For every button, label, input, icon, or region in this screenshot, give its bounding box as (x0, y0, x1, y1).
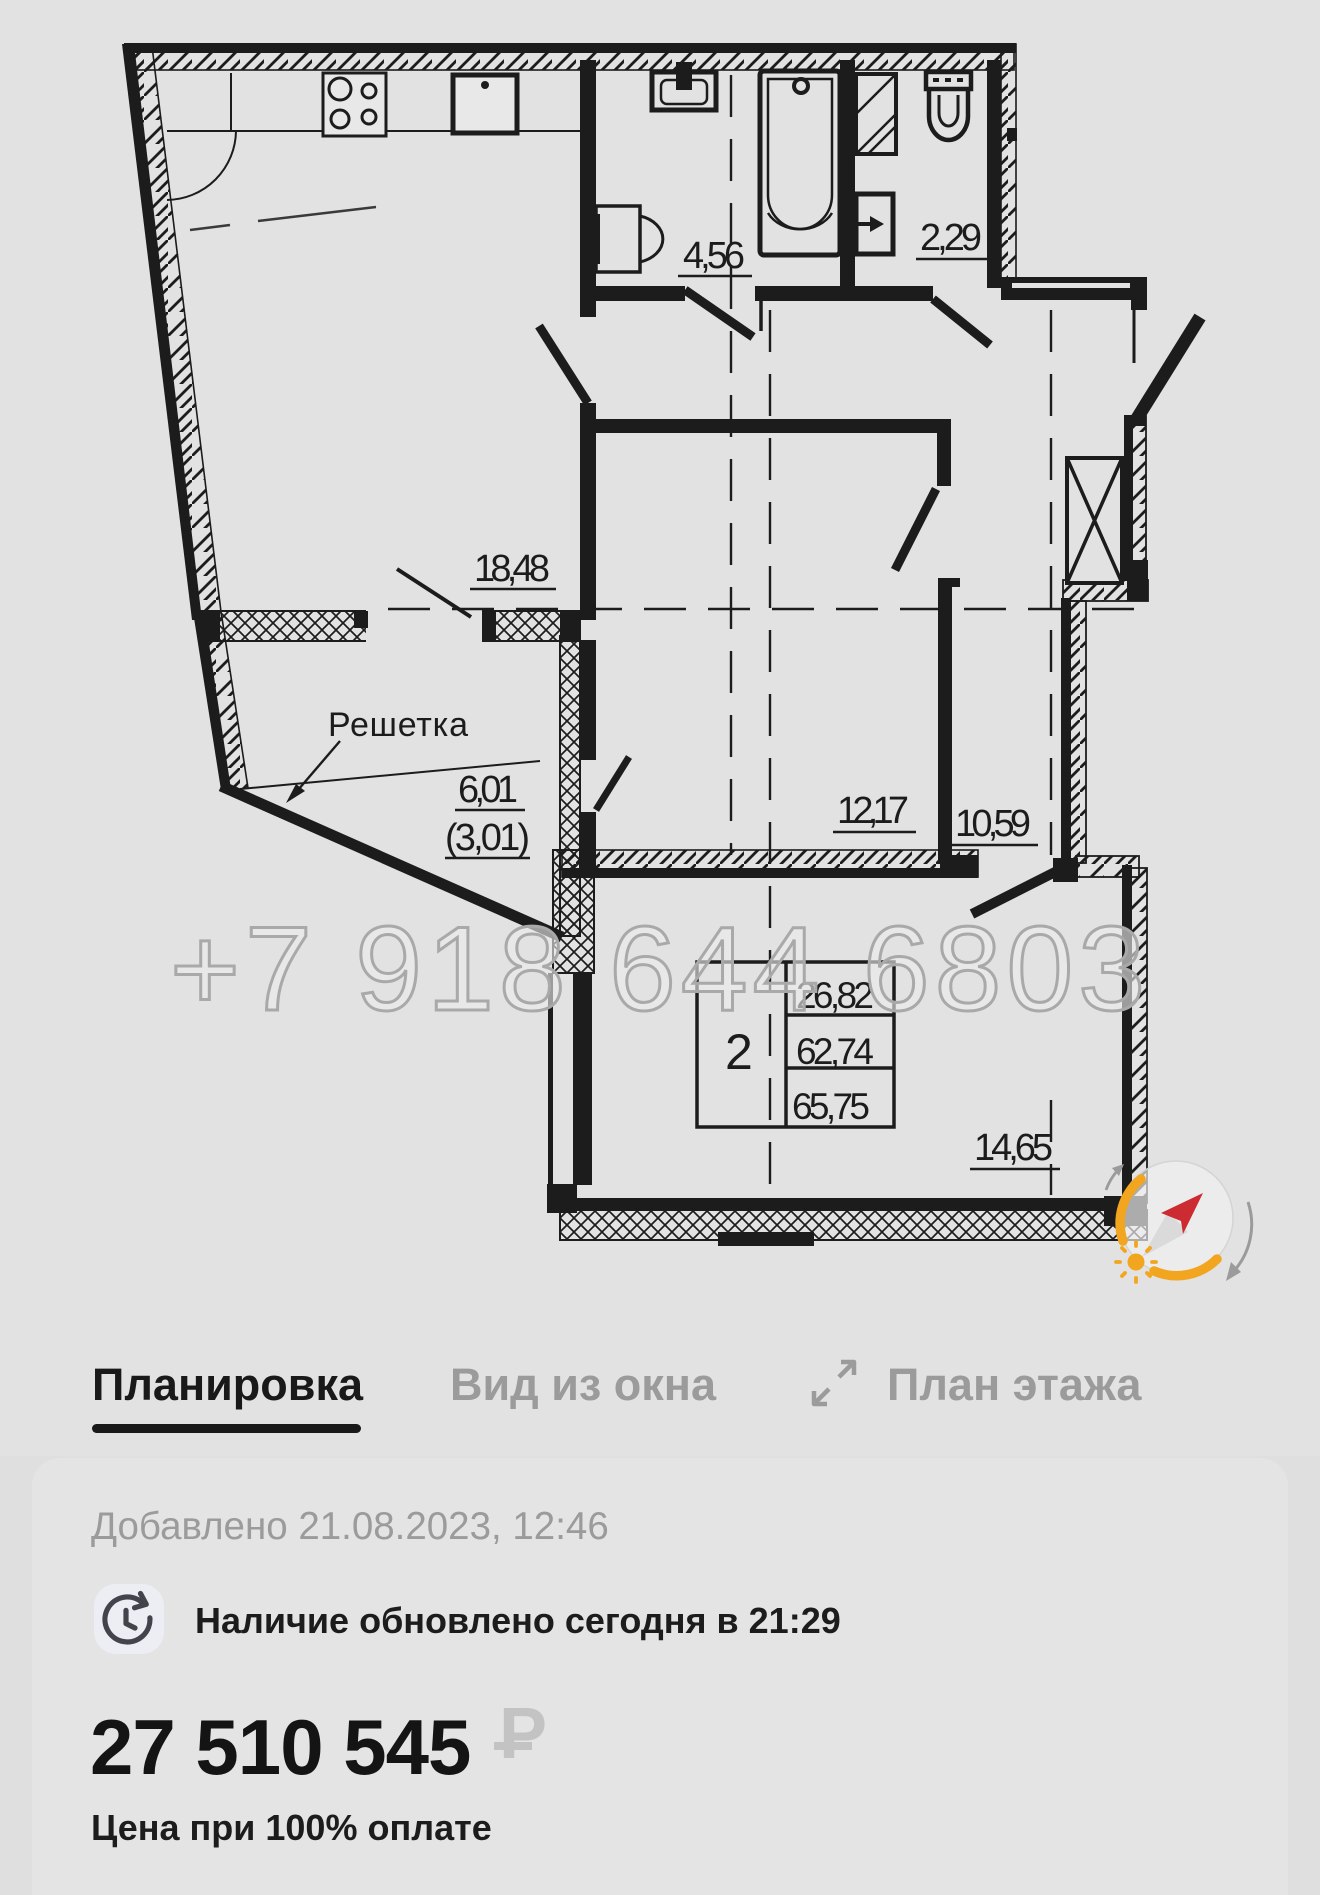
svg-text:4,56: 4,56 (683, 235, 745, 277)
svg-text:10,59: 10,59 (955, 803, 1031, 845)
svg-text:+7 918 644 6803: +7 918 644 6803 (170, 902, 1145, 1036)
svg-text:2,29: 2,29 (920, 217, 982, 259)
svg-text:62,74: 62,74 (796, 1031, 874, 1072)
svg-text:(3,01): (3,01) (445, 817, 530, 859)
svg-text:14,65: 14,65 (974, 1127, 1053, 1169)
svg-text:6,01: 6,01 (458, 769, 518, 811)
svg-text:Решетка: Решетка (328, 706, 468, 744)
svg-text:65,75: 65,75 (792, 1086, 870, 1127)
svg-text:18,48: 18,48 (474, 548, 550, 590)
svg-text:12,17: 12,17 (837, 790, 909, 832)
